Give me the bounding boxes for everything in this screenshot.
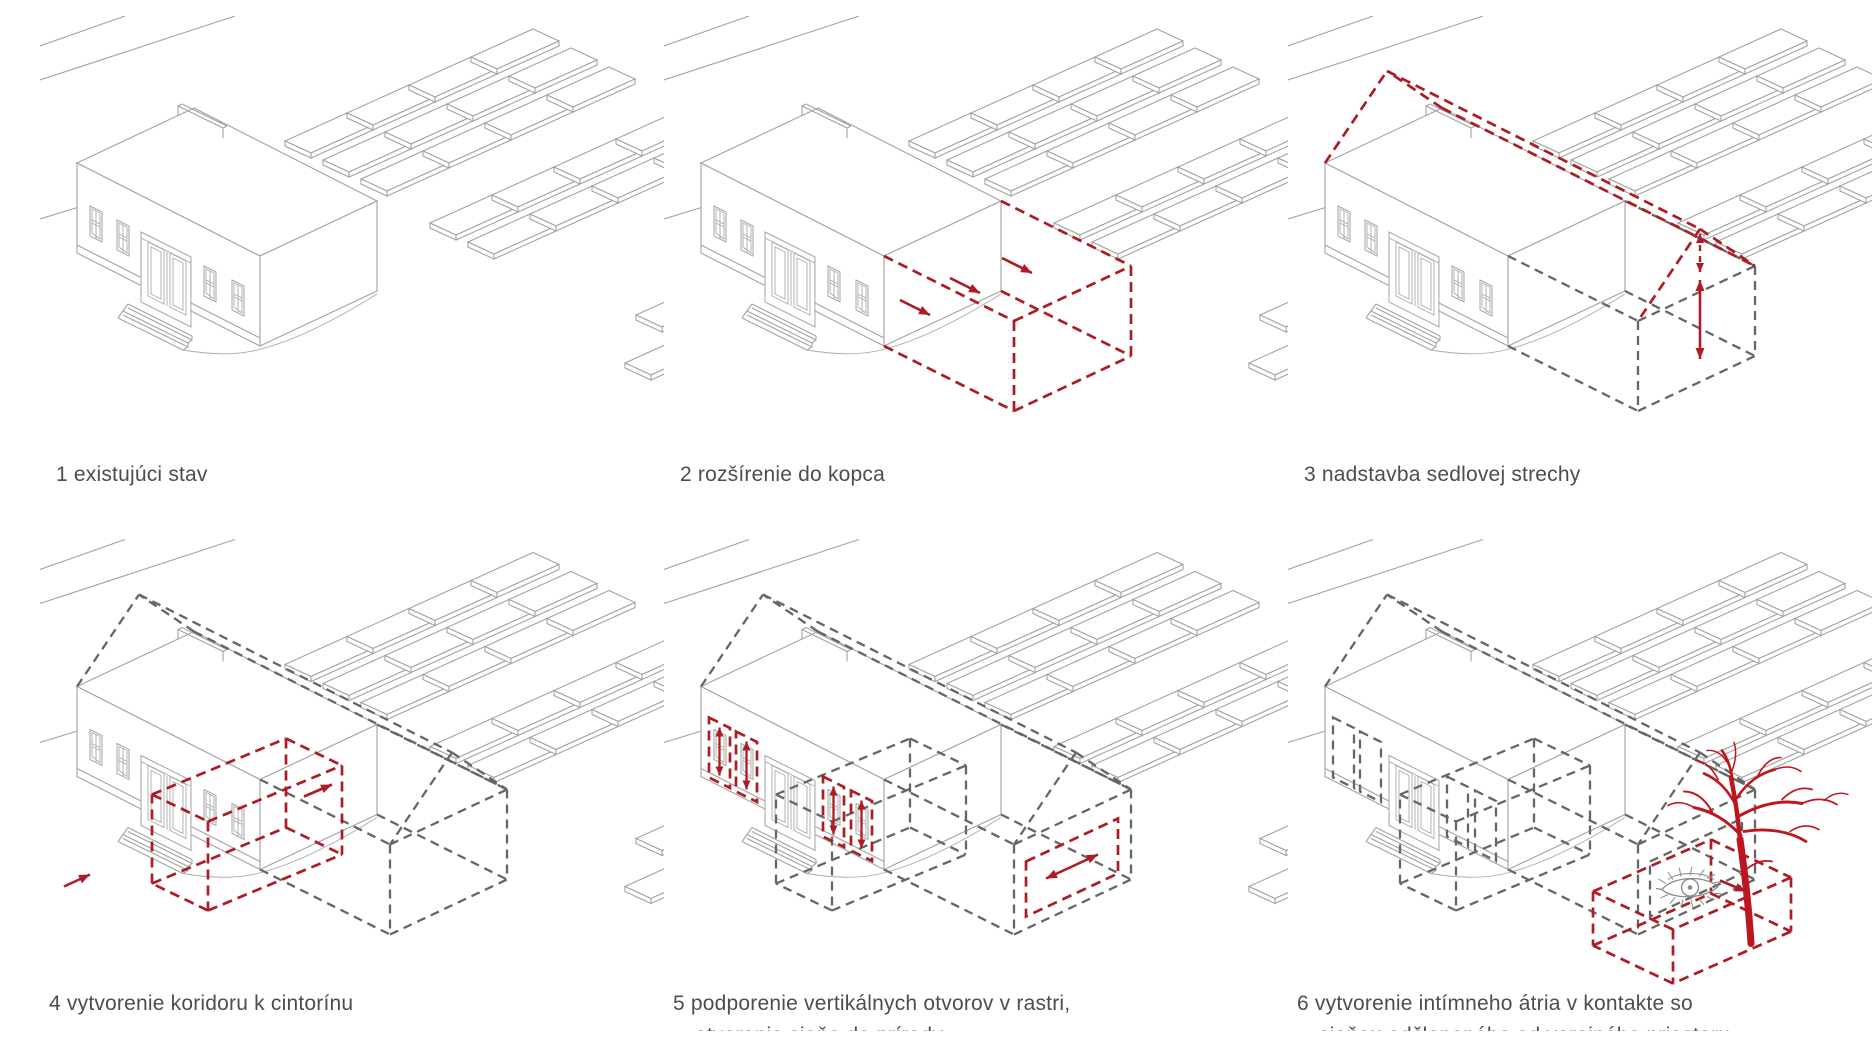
caption-line: 3 nadstavba sedlovej strechy — [1304, 459, 1580, 491]
panel-atrium: 6 vytvorenie intímneho átria v kontakte … — [1288, 539, 1872, 1031]
drawing-gable-roof — [1288, 16, 1872, 507]
diagram-board: 1 existujúci stav 2 rozšírenie do kopca … — [0, 0, 1872, 1047]
panel-caption: 3 nadstavba sedlovej strechy — [1304, 459, 1580, 491]
drawing-existing-state — [40, 16, 664, 507]
panel-hill-extension: 2 rozšírenie do kopca — [664, 16, 1288, 507]
caption-line: sieňou odčleneného od verejného priestor… — [1297, 1020, 1730, 1031]
panel-vertical-openings: 5 podporenie vertikálnych otvorov v rast… — [664, 539, 1288, 1031]
caption-line: 5 podporenie vertikálnych otvorov v rast… — [673, 988, 1070, 1020]
panel-corridor: 4 vytvorenie koridoru k cintorínu — [40, 539, 664, 1031]
drawing-atrium — [1288, 539, 1872, 1031]
caption-line: otvorenie sieňe do prírody — [673, 1020, 1070, 1031]
opening-width-arrow — [1046, 855, 1098, 879]
panel-existing-state: 1 existujúci stav — [40, 16, 664, 507]
caption-line: 2 rozšírenie do kopca — [680, 459, 885, 491]
caption-line: 4 vytvorenie koridoru k cintorínu — [49, 988, 353, 1020]
panel-caption: 6 vytvorenie intímneho átria v kontakte … — [1297, 988, 1730, 1031]
panel-caption: 4 vytvorenie koridoru k cintorínu — [49, 988, 353, 1020]
drawing-vertical-openings — [664, 539, 1288, 1031]
height-measure-arrows — [1696, 234, 1705, 359]
caption-line: 6 vytvorenie intímneho átria v kontakte … — [1297, 988, 1730, 1020]
panel-gable-roof: 3 nadstavba sedlovej strechy — [1288, 16, 1872, 507]
drawing-hill-extension — [664, 16, 1288, 507]
caption-line: 1 existujúci stav — [56, 459, 208, 491]
panel-caption: 1 existujúci stav — [56, 459, 208, 491]
drawing-corridor — [40, 539, 664, 1031]
panel-caption: 2 rozšírenie do kopca — [680, 459, 885, 491]
panel-caption: 5 podporenie vertikálnych otvorov v rast… — [673, 988, 1070, 1031]
